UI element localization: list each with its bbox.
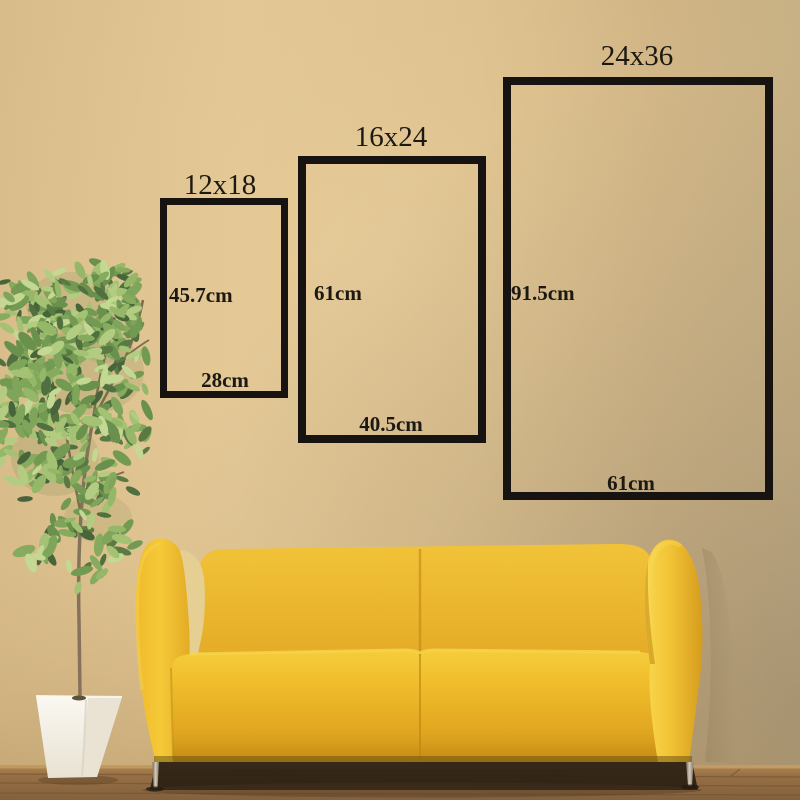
- svg-text:91.5cm: 91.5cm: [511, 281, 575, 305]
- svg-text:24x36: 24x36: [601, 40, 674, 72]
- svg-text:16x24: 16x24: [355, 121, 428, 153]
- svg-text:28cm: 28cm: [201, 368, 249, 392]
- svg-text:40.5cm: 40.5cm: [359, 412, 423, 436]
- svg-text:12x18: 12x18: [184, 169, 257, 201]
- svg-text:61cm: 61cm: [607, 471, 655, 495]
- svg-text:61cm: 61cm: [314, 281, 362, 305]
- svg-text:45.7cm: 45.7cm: [169, 283, 233, 307]
